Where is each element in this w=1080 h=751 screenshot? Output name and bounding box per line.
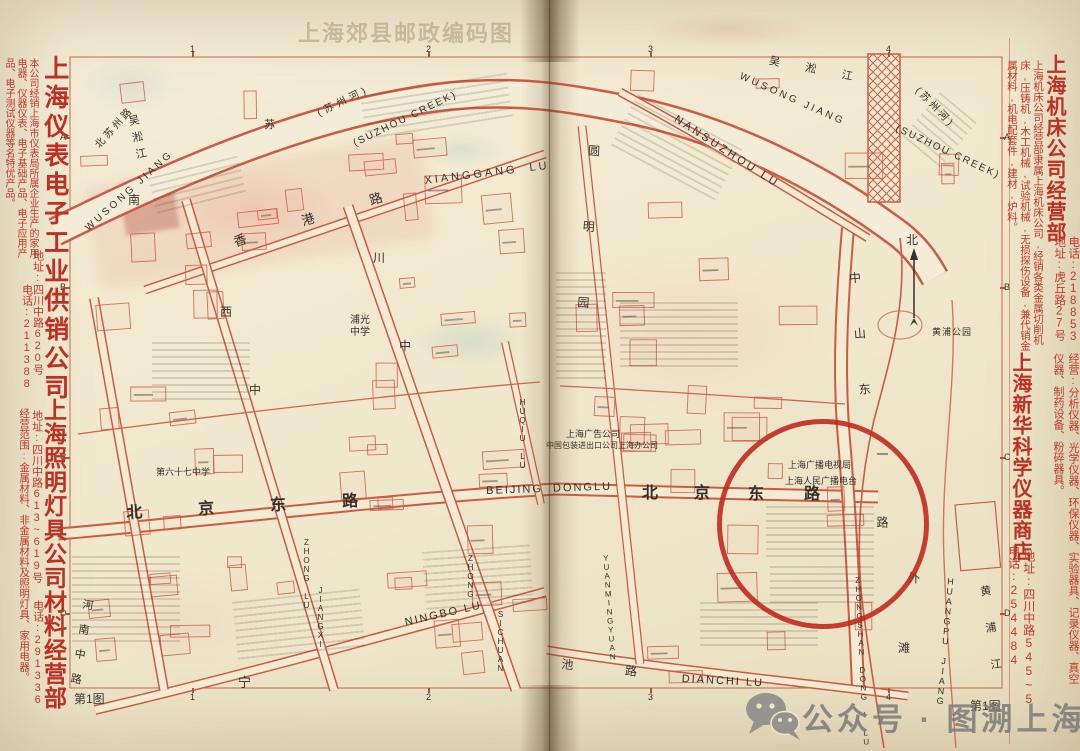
ad-left-top-phone: 电话:211388 xyxy=(20,284,33,394)
grid-tick xyxy=(650,688,652,693)
grid-reference-layer: 11223344AABBCCDD xyxy=(0,0,1080,751)
grid-tick xyxy=(192,52,194,57)
grid-tick xyxy=(650,52,652,57)
book-fold-line xyxy=(549,0,550,751)
grid-col-label-bottom: 2 xyxy=(426,692,431,702)
ad-left-top-title: 上海仪表电子工业供销公司 xyxy=(40,55,69,405)
ad-right-top-phone: 电话:218853 xyxy=(1066,236,1079,351)
ad-right-bottom-phone: 电话:254484 xyxy=(1006,545,1020,690)
ad-right-top-body: 上海机床公司经营部隶属上海机床公司,经销各类金属切削机床,压铸机,木工机械,试验… xyxy=(1002,60,1044,360)
ad-right-bottom-title: 上海新华科学仪器商店 xyxy=(1008,352,1031,567)
grid-col-label-bottom: 3 xyxy=(648,692,653,702)
grid-tick xyxy=(888,688,890,693)
grid-tick xyxy=(1000,457,1005,459)
ad-left-top-body: 本公司经销上海市仪表局所属企业生产的家用电器、仪器仪表、电子基础产品、电子应用产… xyxy=(2,58,38,263)
wechat-icon xyxy=(744,692,802,742)
grid-tick xyxy=(192,688,194,693)
highlight-circle-annotation xyxy=(717,419,929,629)
grid-col-label-bottom: 1 xyxy=(190,692,195,702)
ad-right-top-title: 上海机床公司经营部 xyxy=(1042,54,1065,246)
grid-tick xyxy=(428,52,430,57)
grid-tick xyxy=(888,52,890,57)
watermark-text: 公众号 · 图溯上海 xyxy=(802,694,1080,739)
sheet-label-left: 第1图 xyxy=(74,690,105,707)
ad-left-bottom-phone: 电话:291336 xyxy=(31,600,44,712)
ad-left-bottom-body: 经营范围:金属材料、非金属材料及照明灯具、家用电器。 xyxy=(18,408,30,690)
grid-tick xyxy=(428,688,430,693)
ad-right-top-address: 地址:虎丘路27号 xyxy=(1052,236,1065,364)
ad-right-bottom-body: 经营:分析仪器、光学仪器、环保仪器、实验器具、记录仪器、真空仪器、制药设备、粉碎… xyxy=(1044,353,1080,688)
scanned-map-page: WUSONG JIANG(苏州河)(SUZHOU CREEK)北苏州路吴淞江南苏… xyxy=(0,0,1080,751)
grid-tick xyxy=(1000,613,1005,615)
ad-left-bottom-address: 地址:四川中路613~619号 xyxy=(30,410,43,588)
